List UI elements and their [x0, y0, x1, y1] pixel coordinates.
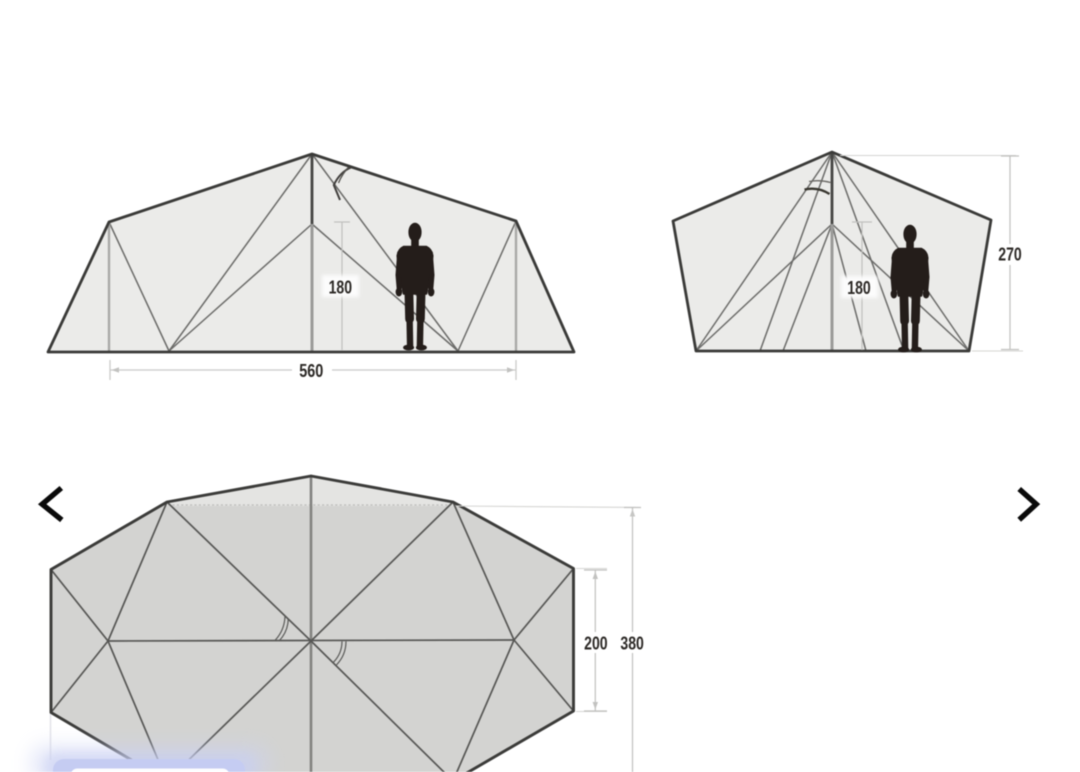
- svg-text:200: 200: [584, 634, 607, 654]
- svg-text:560: 560: [299, 360, 323, 381]
- svg-text:180: 180: [329, 278, 352, 298]
- svg-text:380: 380: [620, 634, 643, 654]
- svg-text:270: 270: [998, 245, 1021, 265]
- svg-text:180: 180: [847, 278, 870, 298]
